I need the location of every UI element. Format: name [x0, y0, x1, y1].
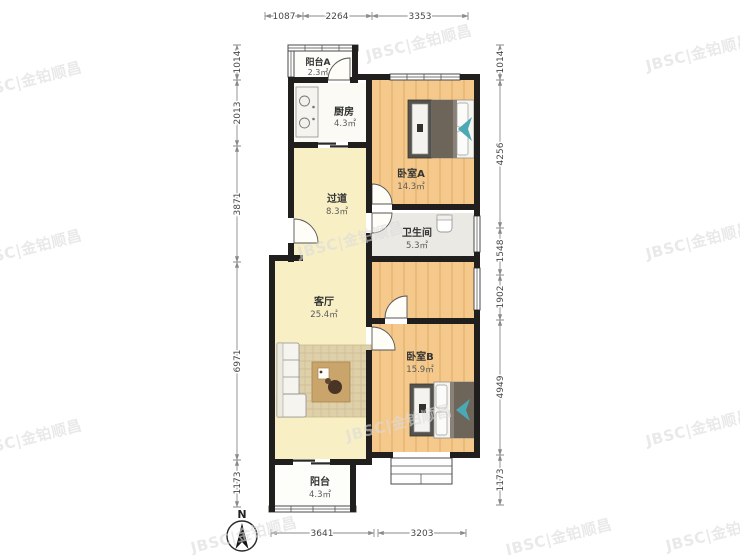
dim-top-3: 3353 [409, 12, 432, 22]
dim-left-4: 6971 [233, 350, 243, 373]
dim-bottom-2: 3203 [411, 529, 434, 539]
dim-top-2: 2264 [326, 12, 349, 22]
watermark-text: JBSC|金铂顺昌 [363, 21, 474, 66]
dim-top-1: 1087 [273, 12, 296, 22]
dimensions-right: 1014 4256 1548 1902 4949 1173 [496, 45, 506, 505]
area-bedroom-a: 14.3㎡ [397, 182, 425, 192]
dim-right-6: 1173 [496, 469, 506, 492]
north-label: N [237, 508, 246, 521]
watermark-text: JBSC|金铂顺昌 [643, 406, 740, 451]
watermark-text: JBSC|金铂顺昌 [663, 511, 740, 555]
area-living-room: 25.4㎡ [310, 310, 338, 320]
dim-left-3: 3871 [233, 193, 243, 216]
dim-right-3: 1548 [496, 239, 506, 262]
label-hallway: 过道 [327, 192, 347, 205]
window-symbol [474, 268, 480, 310]
label-bedroom-a: 卧室A [397, 167, 425, 180]
dim-left-5: 1173 [233, 472, 243, 495]
area-balcony-a: 2.3㎡ [308, 68, 329, 77]
sliding-door-kitchen [318, 143, 348, 148]
dim-left-1: 1014 [233, 50, 243, 73]
dimensions-bottom: 3641 3203 [271, 529, 466, 539]
label-balcony-a: 阳台A [306, 56, 331, 68]
label-balcony: 阳台 [310, 475, 330, 488]
dim-left-2: 2013 [233, 102, 243, 125]
toilet-icon [437, 215, 452, 232]
watermark-text: JBSC|金铂顺昌 [643, 219, 740, 264]
dimensions-left: 1014 2013 3871 6971 1173 [233, 45, 243, 507]
window-symbol [288, 51, 294, 77]
wardrobe-icon [408, 100, 432, 158]
window-symbol [269, 506, 356, 512]
window-symbol [288, 45, 358, 51]
watermark-text: JBSC|金铂顺昌 [643, 31, 740, 76]
dim-bottom-1: 3641 [311, 529, 334, 539]
watermark-text: JBSC|金铂顺昌 [0, 58, 84, 103]
label-kitchen: 厨房 [334, 105, 354, 118]
dim-right-2: 4256 [496, 142, 506, 165]
area-balcony: 4.3㎡ [309, 490, 332, 500]
window-symbol [474, 216, 480, 252]
area-hallway: 8.3㎡ [326, 207, 349, 217]
window-symbol [390, 74, 460, 80]
dimensions-top: 1087 2264 3353 [265, 12, 468, 22]
bay-window-symbol [391, 458, 452, 484]
label-bathroom: 卫生间 [402, 226, 432, 239]
area-bedroom-b: 15.9㎡ [406, 365, 434, 375]
stove-icon [296, 87, 318, 137]
sliding-door-balcony [293, 460, 333, 465]
dim-right-1: 1014 [496, 50, 506, 73]
coffee-table-icon [312, 362, 350, 402]
dim-right-4: 1902 [496, 286, 506, 309]
area-bathroom: 5.3㎡ [406, 241, 429, 251]
label-bedroom-b: 卧室B [406, 350, 434, 363]
area-kitchen: 4.3㎡ [334, 119, 357, 129]
floor-plan-svg: 阳台A 2.3㎡ 厨房 4.3㎡ 卧室A 14.3㎡ 过道 8.3㎡ 卫生间 5… [0, 0, 740, 555]
label-living-room: 客厅 [313, 295, 334, 308]
dim-right-5: 4949 [496, 375, 506, 398]
bed-icon [432, 100, 474, 158]
watermark-text: JBSC|金铂顺昌 [0, 416, 84, 461]
watermark-text: JBSC|金铂顺昌 [503, 515, 614, 555]
watermark-text: JBSC|金铂顺昌 [0, 226, 84, 271]
floor-plan-image: 阳台A 2.3㎡ 厨房 4.3㎡ 卧室A 14.3㎡ 过道 8.3㎡ 卫生间 5… [0, 0, 740, 555]
